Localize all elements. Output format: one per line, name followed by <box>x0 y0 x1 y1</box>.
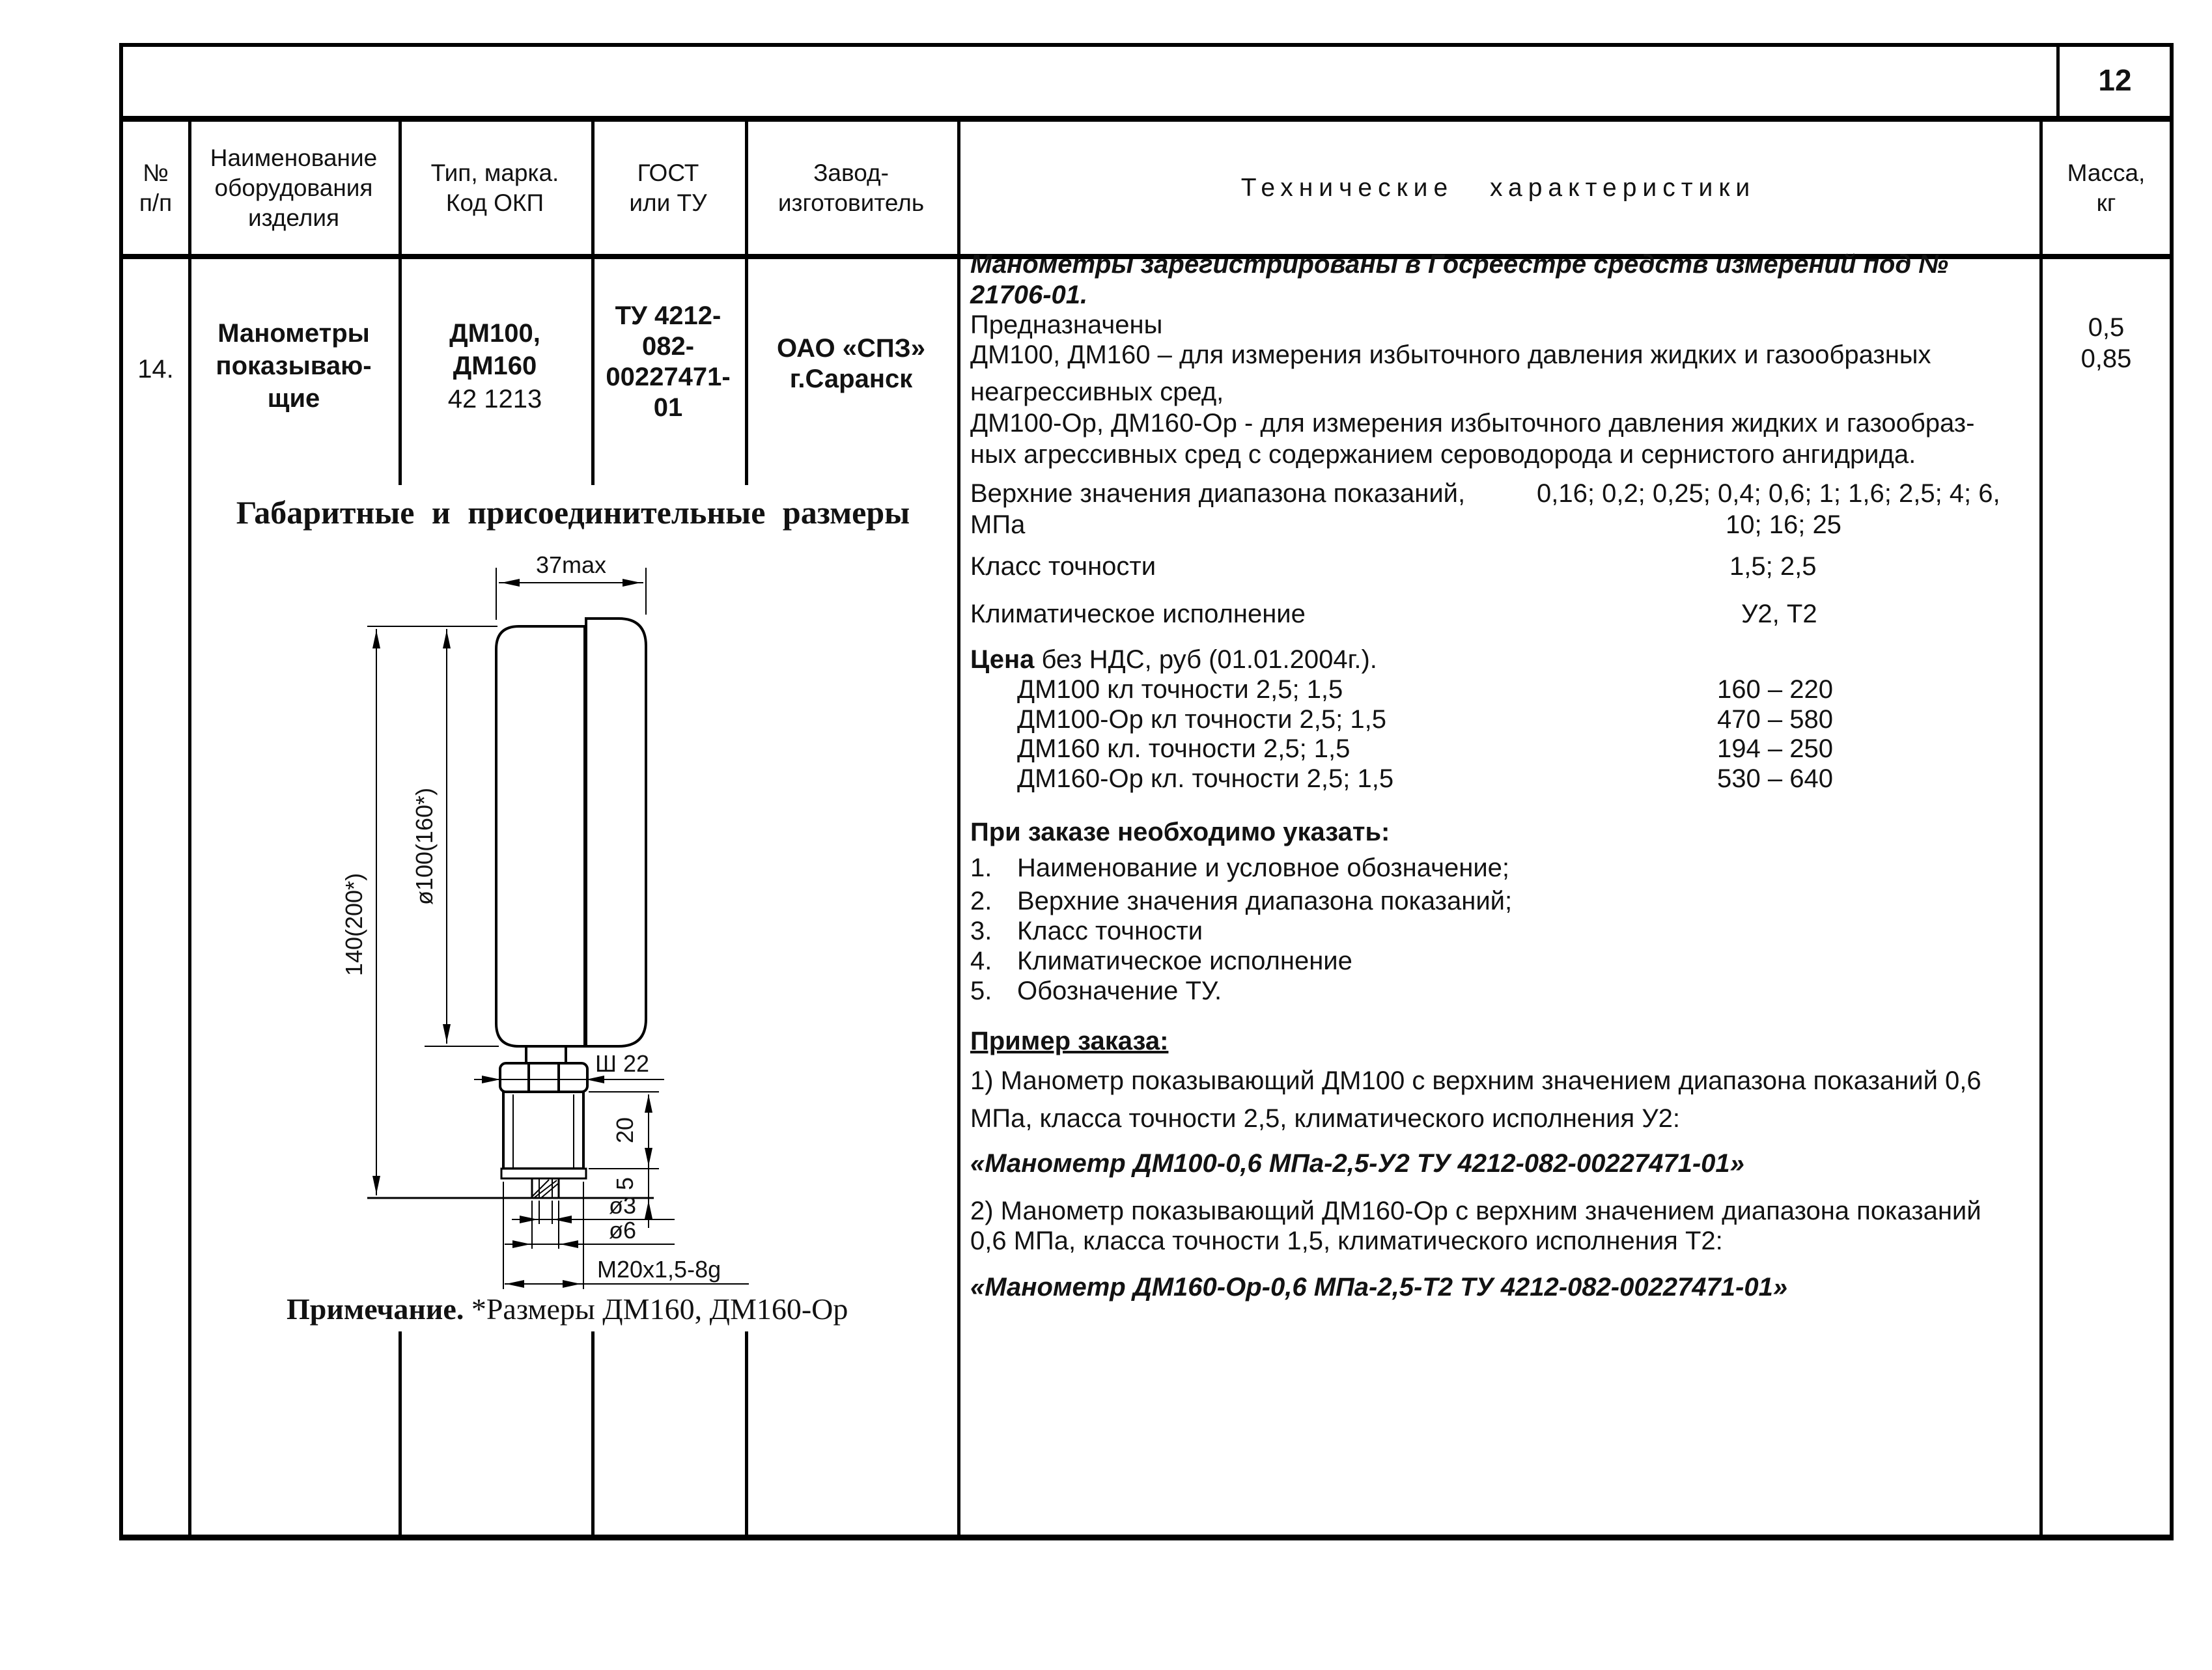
example1-line2: МПа, класса точности 2,5, климатического… <box>970 1103 2038 1134</box>
threaded-stem <box>503 1092 583 1169</box>
dim-label-diameter: ø100(160*) <box>411 788 438 905</box>
example1-line1: 1) Манометр показывающий ДМ100 с верхним… <box>970 1065 2038 1096</box>
tech-price-heading: Цена без НДС, руб (01.01.2004г.). <box>970 644 2038 675</box>
gauge-drawing: 37max 140(200*) ø100(160*) Ш 22 20 5 ø3 … <box>195 540 814 1354</box>
page-left-frame <box>119 43 123 1540</box>
order-item-num: 2. <box>970 885 1017 917</box>
dim-label-width: 37max <box>536 551 606 578</box>
order-item-num: 5. <box>970 975 1017 1007</box>
col-line-5 <box>957 122 960 1535</box>
price-item-value: 160 – 220 <box>1717 674 1833 705</box>
example2-code: «Манометр ДМ160-Ор-0,6 МПа-2,5-Т2 ТУ 421… <box>970 1272 2038 1303</box>
gauge-case-outline <box>496 626 585 1046</box>
tech-range-line1: Верхние значения диапазона показаний, 0,… <box>970 478 2038 509</box>
header-cell-tech: Технические характеристики <box>961 128 2036 249</box>
header-cell-mass: Масса, кг <box>2043 128 2169 249</box>
order-item: 4.Климатическое исполнение <box>970 945 2038 977</box>
accuracy-values: 1,5; 2,5 <box>1729 551 1816 582</box>
price-item: ДМ160 кл. точности 2,5; 1,5 194 – 250 <box>970 733 2085 764</box>
price-item-label: ДМ160-Ор кл. точности 2,5; 1,5 <box>1017 764 1393 793</box>
example2-line2: 0,6 МПа, класса точности 1,5, климатичес… <box>970 1225 2038 1257</box>
dim-label-hole-small: ø3 <box>609 1192 636 1219</box>
tech-registered-line1: Манометры зарегистрированы в Госреестре … <box>970 249 2038 280</box>
tech-purpose-1: ДМ100, ДМ160 – для измерения избыточного… <box>970 339 2038 370</box>
order-item-text: Климатическое исполнение <box>1017 947 1352 975</box>
page-right-frame <box>2170 43 2174 1540</box>
price-item: ДМ100-Ор кл точности 2,5; 1,5 470 – 580 <box>970 704 2085 735</box>
example-heading-text: Пример заказа: <box>970 1027 1168 1055</box>
dim-label-wrench: Ш 22 <box>595 1050 649 1077</box>
order-item-text: Верхние значения диапазона показаний; <box>1017 887 1512 915</box>
example-heading: Пример заказа: <box>970 1025 2038 1057</box>
row-type-mark: ДМ100, ДМ160 <box>402 317 587 382</box>
tech-range-line2: МПа 10; 16; 25 <box>970 509 2038 540</box>
order-item-num: 3. <box>970 915 1017 947</box>
order-item: 5.Обозначение ТУ. <box>970 975 2038 1007</box>
hex-nut <box>500 1063 587 1092</box>
example1-code: «Манометр ДМ100-0,6 МПа-2,5-У2 ТУ 4212-0… <box>970 1148 2038 1179</box>
col-line-6 <box>2039 122 2043 1535</box>
table-top-line <box>119 116 2174 122</box>
order-item-text: Класс точности <box>1017 917 1203 945</box>
row-factory: ОАО «СПЗ» г.Саранск <box>749 333 953 395</box>
row-okp-code: 42 1213 <box>402 385 587 414</box>
dim-label-tail-length: 5 <box>611 1177 638 1190</box>
row-mass-values: 0,5 0,85 <box>2043 312 2169 374</box>
tech-registered-line2: 21706-01. <box>970 279 2038 311</box>
price-heading-bold: Цена <box>970 645 1034 674</box>
tech-purpose-3: ДМ100-Ор, ДМ160-Ор - для измерения избыт… <box>970 408 2038 439</box>
dim-label-thread-length: 20 <box>611 1117 638 1143</box>
tech-purpose-2: неагрессивных сред, <box>970 376 2038 408</box>
tech-climate-line: Климатическое исполнение У2, Т2 <box>970 598 2038 630</box>
price-item: ДМ160-Ор кл. точности 2,5; 1,5 530 – 640 <box>970 763 2085 794</box>
accuracy-label: Класс точности <box>970 552 1156 581</box>
price-item-label: ДМ100-Ор кл точности 2,5; 1,5 <box>1017 705 1386 734</box>
order-item-num: 1. <box>970 852 1017 884</box>
order-item: 3.Класс точности <box>970 915 2038 947</box>
drawing-title: Габаритные и присоединительные размеры <box>195 494 951 531</box>
dim-label-hole-big: ø6 <box>609 1217 636 1244</box>
tech-purpose-intro: Предназначены <box>970 309 2038 341</box>
range-values-2: 10; 16; 25 <box>1726 509 1841 540</box>
range-label: Верхние значения диапазона показаний, <box>970 479 1465 508</box>
header-cell-type: Тип, марка. Код ОКП <box>402 128 587 249</box>
price-item-value: 530 – 640 <box>1717 763 1833 794</box>
dim-label-thread: M20x1,5-8g <box>597 1256 721 1283</box>
page-number: 12 <box>2060 63 2170 98</box>
climate-label: Климатическое исполнение <box>970 600 1306 628</box>
washer-plate <box>501 1169 586 1178</box>
header-cell-factory: Завод- изготовитель <box>749 128 953 249</box>
order-item-num: 4. <box>970 945 1017 977</box>
page-top-line <box>119 43 2174 47</box>
example2-line1: 2) Манометр показывающий ДМ160-Ор с верх… <box>970 1195 2038 1227</box>
order-item-text: Обозначение ТУ. <box>1017 977 1222 1005</box>
range-values-1: 0,16; 0,2; 0,25; 0,4; 0,6; 1; 1,6; 2,5; … <box>1537 478 2000 509</box>
dim-label-height: 140(200*) <box>341 873 367 976</box>
climate-values: У2, Т2 <box>1741 598 1817 630</box>
order-item: 2.Верхние значения диапазона показаний; <box>970 885 2038 917</box>
row-number: 14. <box>124 355 188 384</box>
gauge-bezel-outline <box>586 619 646 1046</box>
header-cell-gost: ГОСТ или ТУ <box>595 128 741 249</box>
order-item-text: Наименование и условное обозначение; <box>1017 854 1509 882</box>
price-item: ДМ100 кл точности 2,5; 1,5 160 – 220 <box>970 674 2085 705</box>
catalog-page: 12 № п/п Наименование оборудования издел… <box>0 0 2212 1670</box>
order-heading: При заказе необходимо указать: <box>970 816 2038 848</box>
price-item-label: ДМ100 кл точности 2,5; 1,5 <box>1017 675 1343 704</box>
header-cell-name: Наименование оборудования изделия <box>193 128 395 249</box>
range-label-unit: МПа <box>970 510 1025 539</box>
row-gost-tu: ТУ 4212- 082- 00227471- 01 <box>595 301 741 423</box>
order-item: 1.Наименование и условное обозначение; <box>970 852 2038 884</box>
row-name: Манометры показываю- щие <box>193 317 395 415</box>
table-bottom-line <box>119 1535 2174 1540</box>
price-heading-rest: без НДС, руб (01.01.2004г.). <box>1034 645 1377 674</box>
price-item-value: 194 – 250 <box>1717 733 1833 764</box>
col-line-1 <box>188 122 191 1535</box>
price-item-label: ДМ160 кл. точности 2,5; 1,5 <box>1017 734 1350 763</box>
tech-accuracy-line: Класс точности 1,5; 2,5 <box>970 551 2038 582</box>
tech-purpose-4: ных агрессивных сред с содержанием серов… <box>970 439 2038 470</box>
header-cell-num: № п/п <box>124 128 188 249</box>
price-item-value: 470 – 580 <box>1717 704 1833 735</box>
